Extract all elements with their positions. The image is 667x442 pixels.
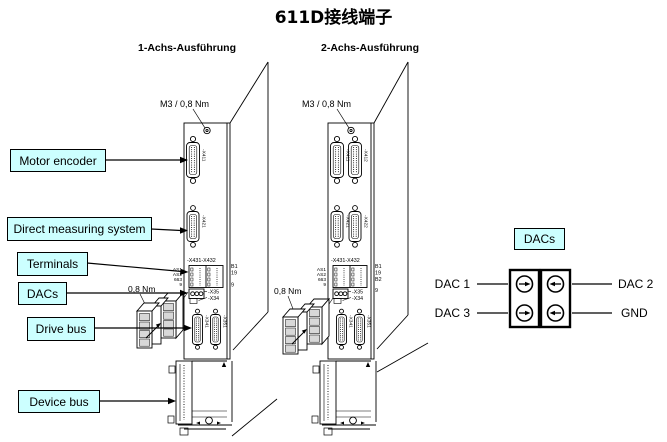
diagram-canvas: M3 / 0,8 Nm 0,8 Nm -X431-X432 -X35 -X34 … (0, 0, 667, 442)
device-bus-connector (312, 361, 336, 435)
dac-block-right (541, 270, 570, 327)
m2-x35-label: -X35 (352, 290, 363, 296)
m1-screw-torque: M3 / 0,8 Nm (160, 99, 209, 109)
module-1: M3 / 0,8 Nm 0,8 Nm -X431-X432 -X35 -X34 … (128, 62, 277, 436)
module-1-header: 1-Achs-Ausführung (112, 42, 262, 54)
dac3-label: DAC 3 (410, 306, 470, 320)
m2-x411-label: -X411 (345, 149, 351, 162)
m2-pin-19: 19 (375, 271, 381, 277)
m2-x341-label: -X341 (348, 315, 354, 328)
terminal-plug-3d (137, 292, 188, 348)
m1-terminal-title: -X431-X432 (187, 258, 216, 264)
drive-bus-connector-1 (193, 309, 203, 349)
m2-pin-9l: 9 (323, 282, 326, 288)
motor-encoder-connector-axis1 (331, 136, 344, 183)
m2-terminal-title: -X431-X432 (331, 258, 360, 264)
m2-x422-label: -X422 (363, 215, 369, 228)
m2-pin-9r: 9 (375, 288, 378, 294)
dac1-label: DAC 1 (410, 277, 470, 291)
drive-bus-connector-2 (211, 309, 221, 349)
page-title: 611D接线端子 (0, 3, 667, 28)
motor-encoder-connector (187, 136, 200, 183)
m1-pin-b1: B1 (231, 264, 238, 270)
m1-pin-9r: 9 (231, 283, 234, 289)
m2-x351-label: -X351 (366, 315, 372, 328)
direct-measuring-connector-axis2 (349, 206, 361, 248)
m1-x34-label: -X34 (208, 296, 219, 302)
m2-pin-b2: B2 (375, 277, 382, 283)
callout-drive-bus: Drive bus (27, 317, 95, 341)
m2-plug-torque: 0,8 Nm (274, 286, 301, 296)
drive-bus-connector-2 (355, 309, 365, 349)
module-2-header: 2-Achs-Ausführung (295, 42, 445, 54)
callout-dacs: DACs (18, 282, 67, 305)
callout-direct-measuring-system: Direct measuring system (7, 217, 152, 241)
gnd-label: GND (621, 306, 667, 320)
m2-screw-torque: M3 / 0,8 Nm (302, 99, 351, 109)
m1-x411-label: -X411 (201, 149, 207, 162)
m1-pin-9l: 9 (179, 282, 182, 288)
m1-pin-19: 19 (231, 271, 237, 277)
module-2-side-panel (374, 62, 428, 372)
drive-bus-connector-1 (337, 309, 347, 349)
device-bus-connector (168, 361, 192, 435)
direct-measuring-connector (187, 206, 199, 248)
module-1-side-panel (230, 62, 277, 436)
dac-block-left (510, 270, 539, 327)
m2-pin-b1: B1 (375, 264, 382, 270)
callout-motor-encoder: Motor encoder (10, 149, 106, 172)
terminal-block-x431-x432 (333, 266, 367, 288)
module-2: M3 / 0,8 Nm 0,8 Nm -X431-X432 -X35 -X34 … (274, 62, 428, 435)
dac-detail-title: DACs (514, 228, 565, 250)
callout-terminals: Terminals (17, 252, 88, 276)
m2-x412-label: -X412 (363, 149, 369, 162)
dac-detail-figure (477, 270, 612, 327)
m1-x421-label: -X421 (201, 215, 207, 228)
terminal-plug-3d (283, 296, 333, 354)
m1-x351-label: -X351 (222, 315, 228, 328)
terminal-block-x431-x432 (189, 266, 223, 288)
direct-measuring-connector-axis1 (331, 206, 343, 248)
dac2-label: DAC 2 (618, 277, 666, 291)
m2-x34-label: -X34 (352, 296, 363, 302)
m2-x421-label: -X421 (345, 215, 351, 228)
m1-x341-label: -X341 (204, 315, 210, 328)
callout-device-bus: Device bus (18, 390, 100, 413)
m1-x35-label: -X35 (208, 290, 219, 296)
